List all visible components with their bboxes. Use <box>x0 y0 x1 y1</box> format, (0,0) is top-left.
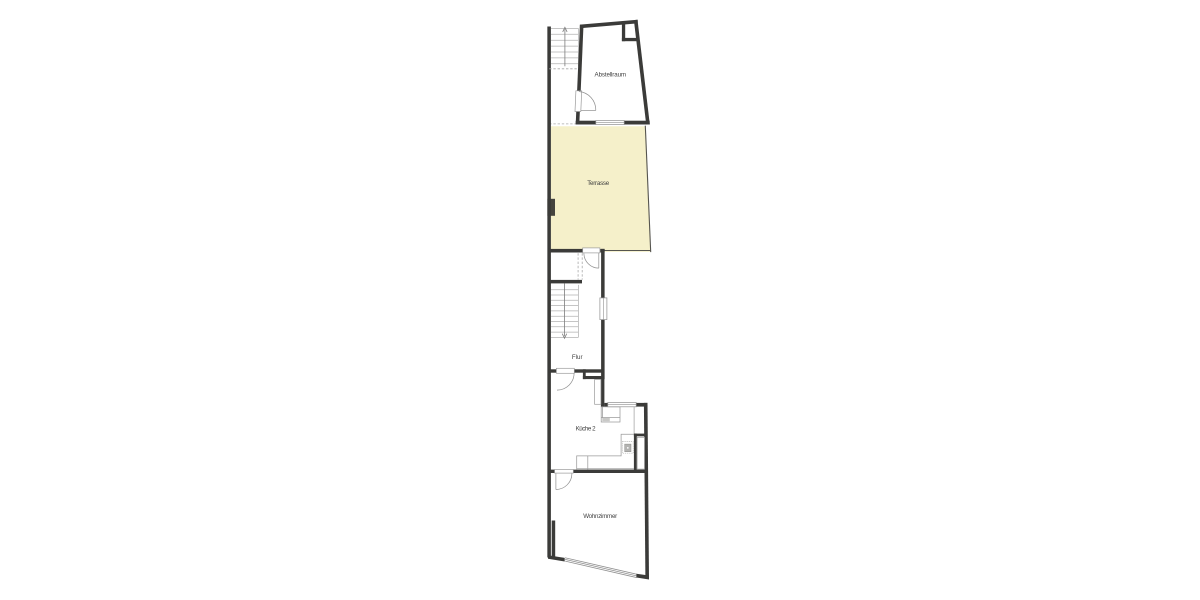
svg-text:Küche 2: Küche 2 <box>576 426 597 433</box>
svg-text:Flur: Flur <box>572 354 583 361</box>
svg-text:Wohnzimmer: Wohnzimmer <box>583 513 617 520</box>
svg-text:Abstellraum: Abstellraum <box>595 72 627 79</box>
svg-text:Terrasse: Terrasse <box>587 180 610 187</box>
